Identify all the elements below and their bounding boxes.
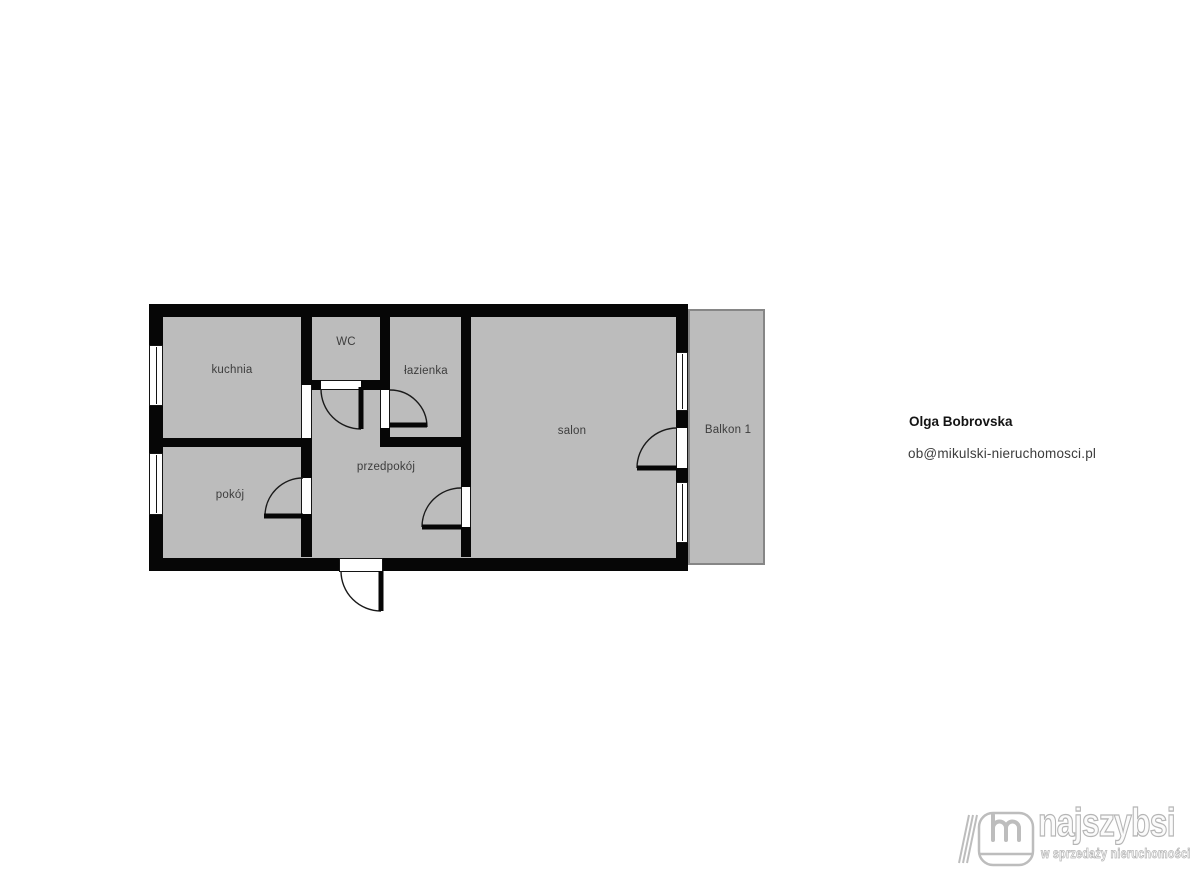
window-salon-bottom xyxy=(676,482,688,543)
room-label-pokoj: pokój xyxy=(216,489,245,501)
logo-book-icon xyxy=(956,810,1038,868)
room-label-wc: WC xyxy=(336,336,356,348)
agent-name: Olga Bobrovska xyxy=(909,414,1013,429)
wall-top xyxy=(149,304,688,317)
entrance-door-arc xyxy=(341,571,381,611)
logo-brand-text: najszybsi xyxy=(1038,803,1175,843)
room-label-salon: salon xyxy=(558,425,587,437)
window-pokoj xyxy=(149,453,163,515)
opening-kuchnia-passage xyxy=(301,385,312,438)
opening-entrance-door xyxy=(339,558,383,572)
room-balkon xyxy=(688,309,765,565)
wall-bottom xyxy=(149,558,688,571)
logo-tagline: w sprzedaży nieruchomości xyxy=(1041,846,1190,861)
room-label-przedpokoj: przedpokój xyxy=(357,461,415,473)
opening-balcony-door xyxy=(676,428,688,468)
opening-lazienka-door xyxy=(380,390,390,428)
opening-salon-door xyxy=(461,487,471,527)
agent-email: ob@mikulski-nieruchomosci.pl xyxy=(908,446,1096,461)
opening-wc-door xyxy=(321,380,361,390)
room-label-kuchnia: kuchnia xyxy=(211,364,252,376)
floorplan-page: kuchnia WC łazienka pokój przedpokój sal… xyxy=(0,0,1200,878)
room-label-balkon: Balkon 1 xyxy=(705,424,751,436)
room-label-lazienka: łazienka xyxy=(404,365,448,377)
wall-kuchnia-pokoj xyxy=(149,438,312,447)
wall-lazienka-bottom xyxy=(380,437,471,447)
window-salon-top xyxy=(676,352,688,411)
window-kuchnia xyxy=(149,345,163,406)
opening-pokoj-door xyxy=(301,478,312,514)
